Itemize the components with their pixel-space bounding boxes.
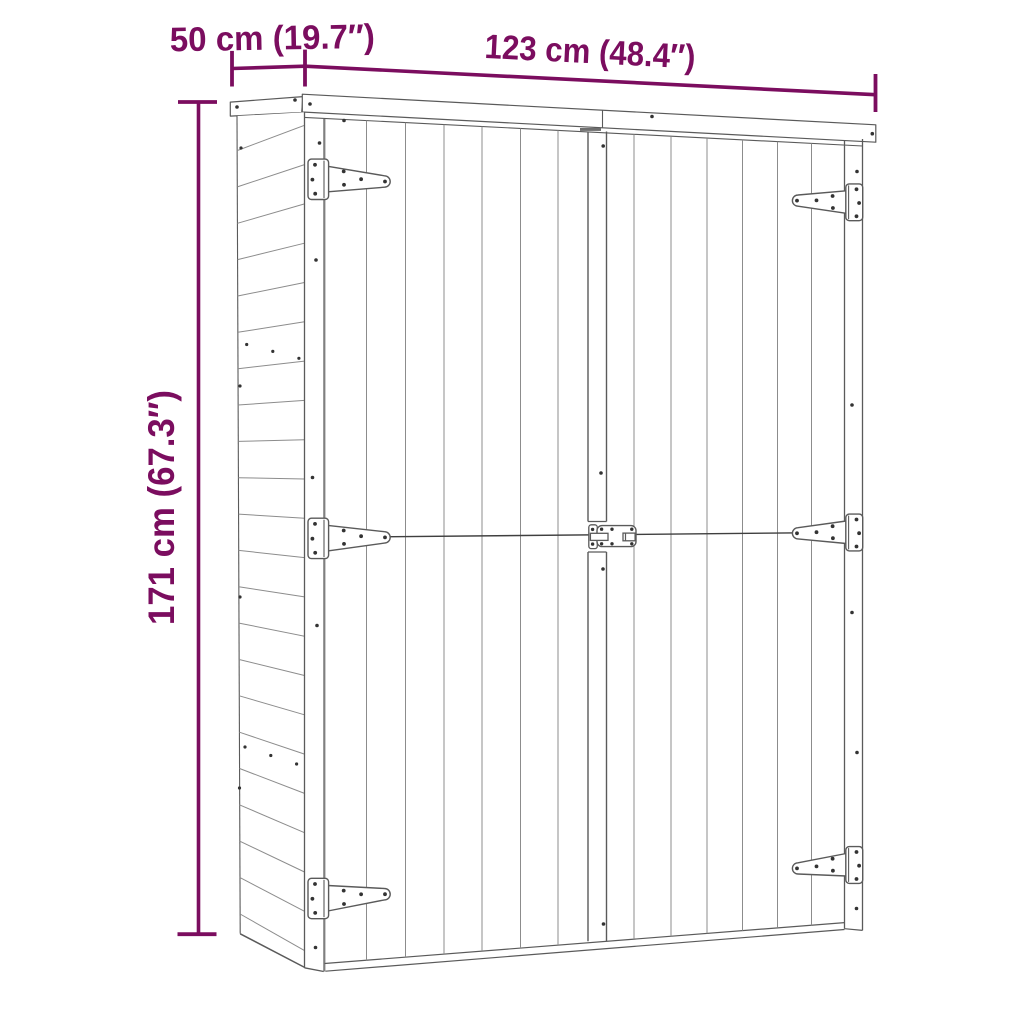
svg-text:50 cm (19.7″): 50 cm (19.7″) — [169, 18, 375, 60]
svg-text:171 cm (67.3″): 171 cm (67.3″) — [141, 390, 182, 625]
